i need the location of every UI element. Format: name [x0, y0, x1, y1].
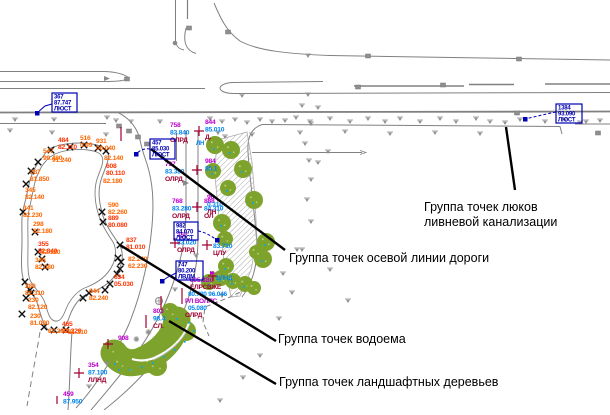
svg-text:✺: ✺ [145, 328, 152, 337]
svg-text:ЛЮСТ: ЛЮСТ [152, 153, 170, 159]
svg-text:ЦЛУ: ЦЛУ [213, 250, 227, 257]
svg-text:05.080: 05.080 [188, 305, 207, 312]
svg-text:ОЛРД: ОЛРД [185, 312, 203, 319]
svg-text:82.140: 82.140 [25, 194, 45, 201]
svg-text:Д.: Д. [205, 134, 212, 141]
svg-text:82.180: 82.180 [103, 178, 123, 185]
svg-text:СЛ.: СЛ. [153, 323, 164, 330]
svg-text:230: 230 [28, 297, 39, 304]
svg-text:80.080: 80.080 [108, 222, 128, 229]
svg-text:82.120: 82.120 [41, 249, 61, 256]
svg-text:346: 346 [35, 257, 46, 264]
svg-text:98.4: 98.4 [153, 316, 166, 323]
svg-text:ОЛРД: ОЛРД [177, 247, 195, 254]
svg-text:230: 230 [30, 313, 41, 320]
svg-text:ВЛНД: ВЛНД [216, 276, 233, 282]
svg-text:908: 908 [118, 335, 129, 342]
svg-text:81.090: 81.090 [30, 320, 50, 327]
svg-text:354: 354 [88, 362, 99, 369]
svg-text:83.710: 83.710 [213, 243, 233, 250]
svg-text:ЛЮСТ: ЛЮСТ [176, 236, 194, 242]
svg-text:87.100: 87.100 [88, 370, 108, 377]
svg-text:ЛН: ЛН [207, 209, 216, 216]
svg-text:ЛЛНД: ЛЛНД [88, 377, 107, 384]
svg-text:634: 634 [114, 274, 125, 281]
svg-text:ЛВДМ: ЛВДМ [178, 275, 195, 281]
svg-text:82.240: 82.240 [89, 295, 109, 302]
svg-text:590: 590 [108, 202, 119, 209]
svg-text:931: 931 [96, 138, 107, 145]
svg-text:ОЛРД: ОЛРД [170, 137, 188, 144]
svg-text:81.310: 81.310 [68, 329, 88, 336]
svg-text:ЛН: ЛН [196, 141, 204, 147]
svg-text:83.840: 83.840 [170, 130, 190, 137]
svg-text:Группа точек водоема: Группа точек водоема [278, 332, 406, 346]
svg-text:87.950: 87.950 [63, 399, 83, 406]
svg-text:82.140: 82.140 [104, 155, 124, 162]
svg-text:Группа точек ландшафтных дерев: Группа точек ландшафтных деревьев [279, 375, 499, 389]
svg-text:91.240: 91.240 [52, 157, 72, 164]
svg-text:82.260: 82.260 [48, 328, 68, 335]
svg-text:345: 345 [25, 187, 36, 194]
svg-text:83.280: 83.280 [172, 206, 192, 213]
svg-text:ОЛРД: ОЛРД [165, 176, 183, 183]
svg-text:768: 768 [172, 198, 183, 205]
svg-text:280: 280 [25, 283, 36, 290]
svg-text:82.230: 82.230 [23, 212, 43, 219]
svg-text:516: 516 [80, 135, 91, 142]
svg-text:ливневой канализации: ливневой канализации [424, 215, 557, 229]
svg-text:80.110: 80.110 [106, 170, 125, 177]
svg-text:837: 837 [126, 237, 137, 244]
svg-text:459: 459 [63, 391, 74, 398]
svg-text:81.850: 81.850 [30, 176, 50, 183]
svg-text:889: 889 [108, 215, 119, 222]
svg-text:82.310: 82.310 [25, 290, 45, 297]
svg-text:82.110: 82.110 [58, 144, 77, 151]
svg-text:ЛЮСТ: ЛЮСТ [558, 118, 576, 124]
svg-text:62.230: 62.230 [128, 263, 148, 270]
svg-text:85.1: 85.1 [205, 166, 218, 173]
svg-text:608: 608 [106, 163, 117, 170]
svg-text:644: 644 [89, 288, 100, 295]
svg-text:80.780 96.046: 80.780 96.046 [188, 291, 228, 298]
svg-text:803: 803 [153, 308, 164, 315]
svg-text:547: 547 [43, 148, 54, 155]
svg-text:82.120: 82.120 [28, 304, 48, 311]
svg-text:Группа точек осевой линии доро: Группа точек осевой линии дороги [289, 251, 489, 265]
svg-text:✺: ✺ [133, 335, 140, 344]
svg-text:984: 984 [205, 158, 216, 165]
svg-text:0.99: 0.99 [80, 142, 93, 149]
svg-text:Группа точек люков: Группа точек люков [424, 200, 538, 214]
svg-text:06.040: 06.040 [96, 145, 116, 152]
svg-text:82.080: 82.080 [35, 264, 55, 271]
svg-text:758: 758 [170, 122, 181, 129]
svg-text:844: 844 [205, 119, 216, 126]
svg-text:ЛЮСТ: ЛЮСТ [54, 107, 72, 113]
svg-text:341: 341 [23, 205, 34, 212]
svg-text:ОЛРД: ОЛРД [172, 213, 190, 220]
svg-text:82.180: 82.180 [33, 228, 53, 235]
svg-text:465: 465 [62, 321, 73, 328]
svg-text:05.030: 05.030 [114, 281, 134, 288]
svg-text:287: 287 [30, 169, 41, 176]
svg-text:298: 298 [33, 221, 44, 228]
svg-text:355: 355 [38, 241, 49, 248]
svg-text:85.010: 85.010 [205, 127, 225, 134]
svg-text:484: 484 [58, 137, 69, 144]
